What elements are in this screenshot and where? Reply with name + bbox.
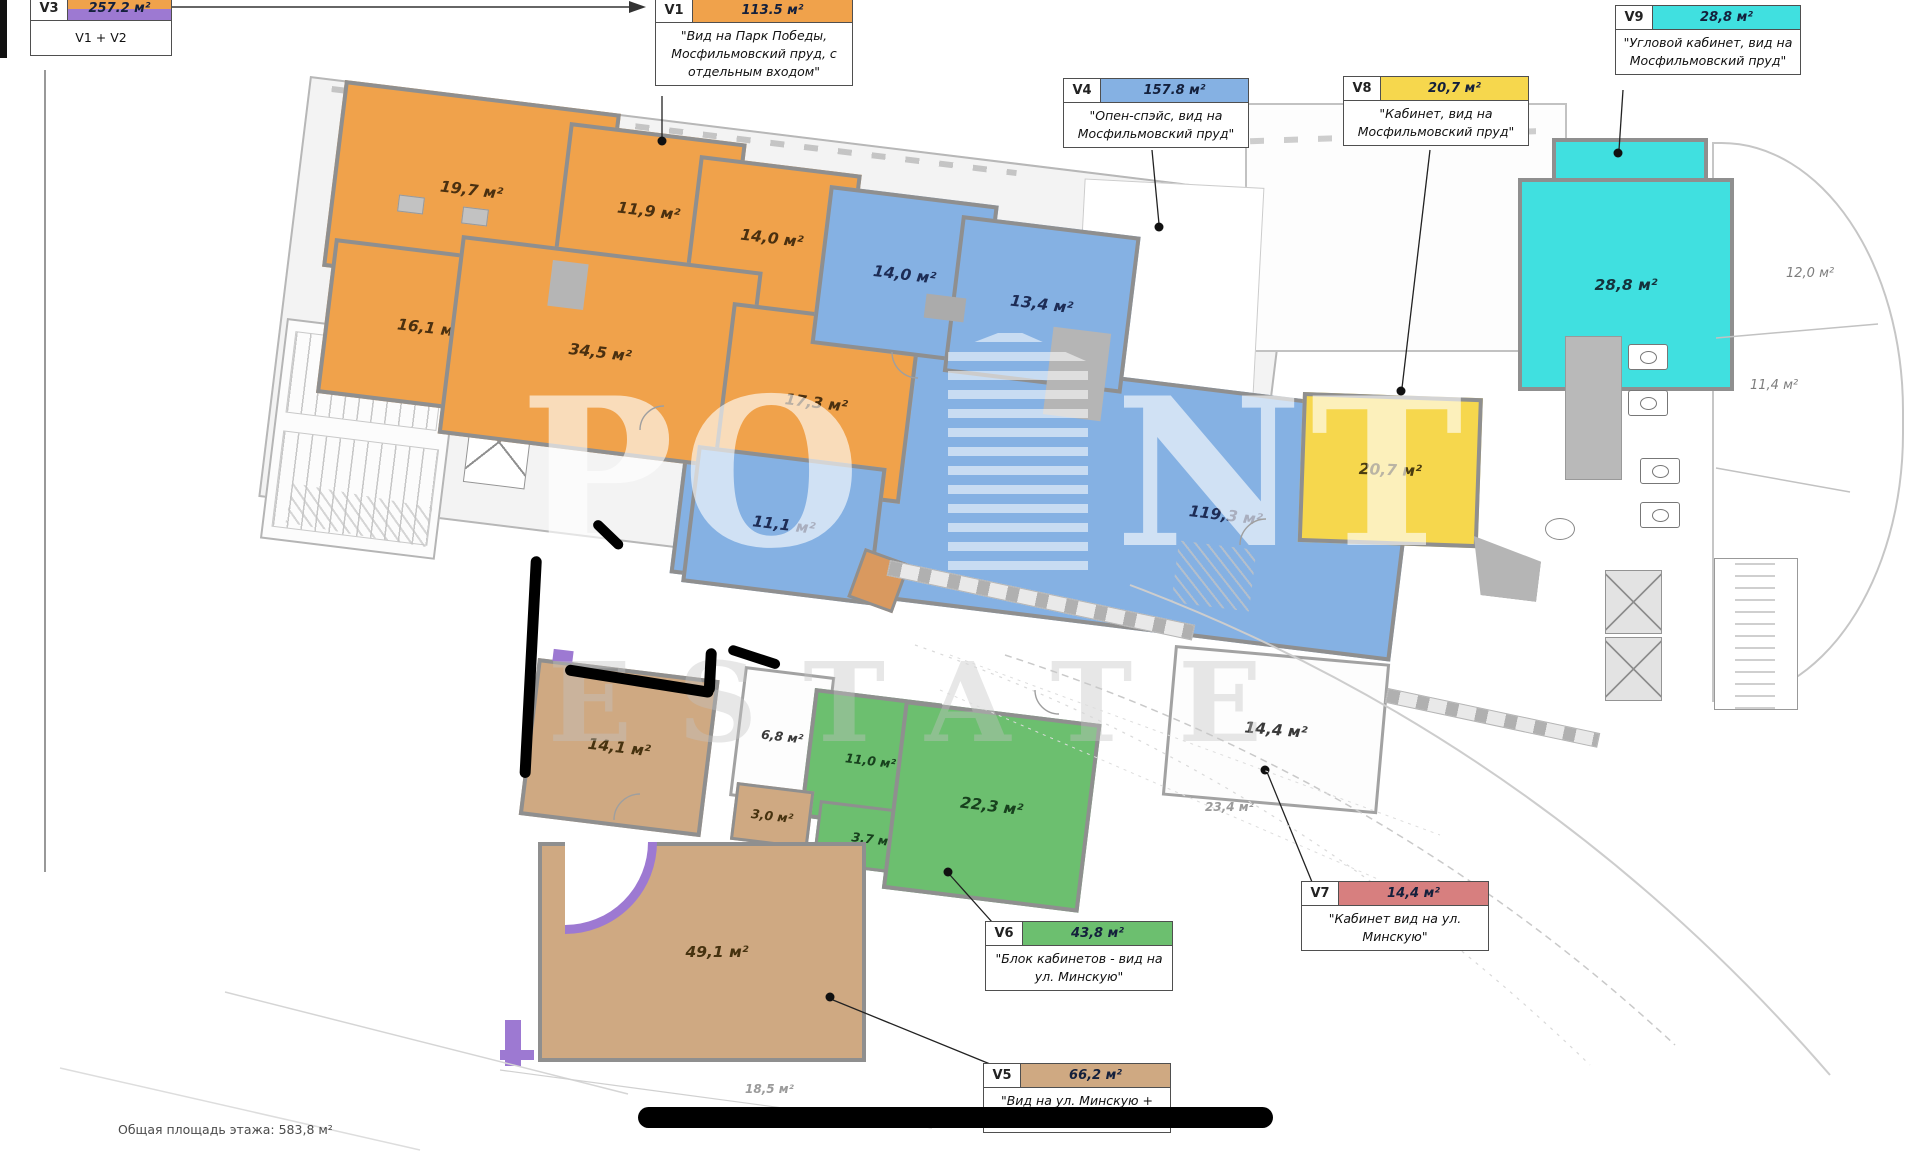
toilet-icon bbox=[1628, 390, 1668, 416]
room-area-label: 119,3 м² bbox=[1188, 502, 1264, 529]
room-3-0: 3,0 м² bbox=[730, 782, 814, 849]
room-area-label: 22,3 м² bbox=[959, 794, 1024, 820]
room-area-label: 14,4 м² bbox=[1244, 718, 1308, 741]
legend-swatch-orange: 113.5 м² bbox=[693, 0, 852, 22]
room-22-3: 22,3 м² bbox=[882, 700, 1102, 913]
legend-swatch-blue: 157.8 м² bbox=[1101, 79, 1248, 102]
legend-v6: V6 43,8 м² "Блок кабинетов - вид на ул. … bbox=[985, 921, 1173, 991]
legend-swatch-tan: 66,2 м² bbox=[1021, 1064, 1170, 1087]
desk bbox=[461, 206, 489, 226]
room-28-8: 28,8 м² bbox=[1518, 178, 1734, 391]
legend-v4: V4 157.8 м² "Опен-спэйс, вид на Мосфильм… bbox=[1063, 78, 1249, 148]
terrace-label-18-5: 18,5 м² bbox=[745, 1082, 794, 1096]
legend-id: V7 bbox=[1302, 882, 1339, 905]
area-label-11-4: 11,4 м² bbox=[1750, 378, 1798, 393]
legend-id: V1 bbox=[656, 0, 693, 22]
terrace-label-23-4: 23,4 м² bbox=[1205, 800, 1254, 814]
curved-wall-notch bbox=[565, 842, 657, 934]
sink-icon bbox=[1545, 518, 1575, 540]
legend-v7: V7 14,4 м² "Кабинет вид на ул. Минскую" bbox=[1301, 881, 1489, 951]
legend-note: "Блок кабинетов - вид на ул. Минскую" bbox=[986, 946, 1172, 990]
elevator-shaft bbox=[1605, 637, 1662, 701]
legend-v3: V3 257.2 м² V1 + V2 bbox=[30, 0, 172, 56]
wet-core bbox=[1043, 327, 1111, 421]
legend-note: "Угловой кабинет, вид на Мосфильмовский … bbox=[1616, 30, 1800, 74]
purple-wall-segment bbox=[500, 1050, 534, 1060]
room-area-label: 14,0 м² bbox=[739, 226, 804, 252]
room-14-4: 14,4 м² bbox=[1162, 645, 1390, 814]
room-area-label: 11,0 м² bbox=[844, 750, 896, 771]
legend-note: "Опен-спэйс, вид на Мосфильмовский пруд" bbox=[1064, 103, 1248, 147]
purple-wall-segment bbox=[552, 649, 573, 663]
ledge-wedge bbox=[1467, 536, 1544, 602]
toilet-icon bbox=[1640, 502, 1680, 528]
toilet-icon bbox=[1640, 458, 1680, 484]
total-floor-area-note: Общая площадь этажа: 583,8 м² bbox=[118, 1122, 333, 1137]
floor-plan-canvas: 119,3 м² 19,7 м² 11,9 м² 14,0 м² 16,1 м²… bbox=[0, 0, 1920, 1151]
hatched-balcony bbox=[1172, 540, 1257, 611]
area-label-12-0: 12,0 м² bbox=[1786, 266, 1834, 281]
legend-swatch-red: 14,4 м² bbox=[1339, 882, 1488, 905]
room-20-7: 20,7 м² bbox=[1298, 392, 1483, 548]
room-area-label: 11,9 м² bbox=[616, 198, 681, 224]
legend-swatch-yellow: 20,7 м² bbox=[1381, 77, 1528, 100]
room-area-label: 17,3 м² bbox=[784, 390, 849, 416]
room-13-4: 13,4 м² bbox=[943, 215, 1141, 394]
legend-v8: V8 20,7 м² "Кабинет, вид на Мосфильмовск… bbox=[1343, 76, 1529, 146]
room-area-label: 34,5 м² bbox=[568, 340, 633, 366]
legend-note: "Кабинет, вид на Мосфильмовский пруд" bbox=[1344, 101, 1528, 145]
legend-v1: V1 113.5 м² "Вид на Парк Победы, Мосфиль… bbox=[655, 0, 853, 86]
room-area-label: 14,0 м² bbox=[872, 262, 937, 288]
elevator-shaft bbox=[1605, 570, 1662, 634]
legend-id: V3 bbox=[31, 0, 68, 20]
legend-v9: V9 28,8 м² "Угловой кабинет, вид на Мосф… bbox=[1615, 5, 1801, 75]
toilet-icon bbox=[1628, 344, 1668, 370]
legend-id: V6 bbox=[986, 922, 1023, 945]
legend-id: V8 bbox=[1344, 77, 1381, 100]
legend-id: V4 bbox=[1064, 79, 1101, 102]
legend-swatch-cyan: 28,8 м² bbox=[1653, 6, 1800, 29]
legend-note: "Вид на Парк Победы, Мосфильмовский пруд… bbox=[656, 23, 852, 85]
room-area-label: 49,1 м² bbox=[685, 943, 748, 961]
legend-swatch-orange-purple: 257.2 м² bbox=[68, 0, 171, 20]
room-34-5: 34,5 м² bbox=[438, 235, 763, 470]
room-area-label: 6,8 м² bbox=[760, 727, 804, 747]
room-area-label: 20,7 м² bbox=[1358, 460, 1422, 480]
service-shaft bbox=[1714, 558, 1798, 710]
legend-note: "Кабинет вид на ул. Минскую" bbox=[1302, 906, 1488, 950]
room-area-label: 3,0 м² bbox=[750, 806, 794, 826]
room-area-label: 28,8 м² bbox=[1594, 276, 1657, 294]
legend-id: V9 bbox=[1616, 6, 1653, 29]
room-area-label: 19,7 м² bbox=[439, 177, 504, 203]
legend-swatch-green: 43,8 м² bbox=[1023, 922, 1172, 945]
window-wall-band bbox=[1385, 688, 1600, 748]
bathroom-block bbox=[1565, 336, 1622, 480]
screen-edge-artifact bbox=[0, 0, 7, 58]
wet-core bbox=[547, 260, 588, 310]
legend-id: V5 bbox=[984, 1064, 1021, 1087]
room-area-label: 14,1 м² bbox=[587, 735, 652, 761]
room-area-label: 13,4 м² bbox=[1009, 292, 1074, 318]
pillar bbox=[924, 294, 967, 323]
legend-note: V1 + V2 bbox=[31, 21, 171, 55]
redaction-bar-bottom bbox=[638, 1107, 1273, 1128]
desk bbox=[397, 194, 425, 214]
room-area-label: 11,1 м² bbox=[751, 512, 816, 538]
